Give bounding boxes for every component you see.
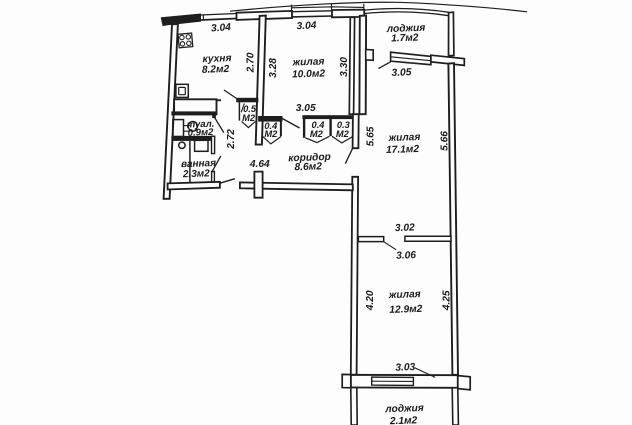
- svg-text:5.66: 5.66: [440, 131, 451, 151]
- svg-text:8.2м2: 8.2м2: [202, 64, 230, 76]
- svg-text:2.72: 2.72: [226, 129, 237, 150]
- svg-text:12.9м2: 12.9м2: [389, 304, 423, 316]
- svg-text:3.28: 3.28: [268, 58, 279, 78]
- svg-text:жилая: жилая: [388, 289, 421, 301]
- svg-text:4.64: 4.64: [249, 159, 270, 170]
- svg-text:3.02: 3.02: [395, 222, 416, 234]
- svg-text:3.06: 3.06: [396, 250, 417, 262]
- svg-text:М2: М2: [242, 113, 256, 123]
- svg-text:4.20: 4.20: [365, 290, 376, 311]
- svg-text:3.03: 3.03: [395, 362, 416, 374]
- svg-text:жилая: жилая: [292, 56, 325, 68]
- svg-text:лоджия: лоджия: [384, 403, 424, 415]
- svg-text:4.25: 4.25: [442, 290, 453, 311]
- svg-text:жилая: жилая: [387, 132, 420, 144]
- svg-text:2.1м2: 2.1м2: [389, 415, 418, 425]
- svg-text:3.05: 3.05: [391, 67, 412, 79]
- svg-text:3.04: 3.04: [211, 22, 232, 34]
- svg-text:0.9м2: 0.9м2: [187, 127, 214, 139]
- svg-text:3.05: 3.05: [296, 103, 316, 114]
- svg-text:3.04: 3.04: [296, 20, 317, 32]
- svg-text:8.6м2: 8.6м2: [294, 161, 322, 173]
- svg-text:М2: М2: [264, 129, 278, 139]
- svg-text:М2: М2: [310, 129, 324, 139]
- svg-text:2.70: 2.70: [246, 52, 257, 73]
- svg-text:10.0м2: 10.0м2: [292, 68, 326, 80]
- svg-text:1.7м2: 1.7м2: [391, 32, 419, 44]
- svg-text:3.30: 3.30: [339, 57, 350, 77]
- svg-text:5.65: 5.65: [366, 126, 377, 146]
- svg-text:2.3м2: 2.3м2: [182, 168, 211, 180]
- svg-text:17.1м2: 17.1м2: [386, 144, 420, 156]
- svg-text:М2: М2: [336, 129, 350, 139]
